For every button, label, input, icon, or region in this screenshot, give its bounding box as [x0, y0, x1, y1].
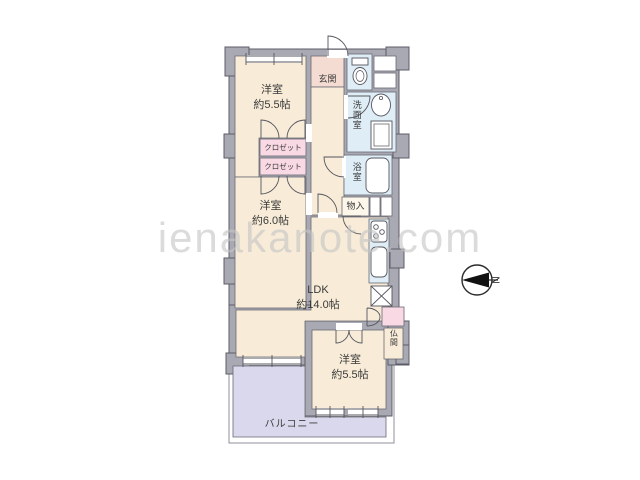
toilet-icon — [352, 58, 368, 65]
bedroom-mid-label: 洋室 約6.0帖 — [235, 199, 306, 229]
bathroom-label: 浴室 — [350, 162, 362, 182]
storage-door-panel — [381, 197, 392, 216]
bedroom-bottom-door — [336, 323, 362, 330]
storage-door-panel — [370, 197, 380, 216]
ldk-label: LDK 約14.0帖 — [281, 283, 355, 313]
butsuma-closet — [382, 307, 404, 326]
bedroom-bottom-label: 洋室 約5.5帖 — [313, 353, 387, 383]
floorplan-drawing: N — [0, 0, 640, 480]
closet2-label: クロゼット — [260, 162, 306, 172]
bathroom-door — [342, 156, 346, 178]
entrance-label: 玄関 — [311, 74, 344, 86]
kitchen-sink-icon — [371, 247, 387, 277]
compass-north-label: N — [489, 276, 500, 283]
ldk-door — [318, 212, 338, 218]
shoe-cabinet — [374, 73, 396, 88]
shoe-cabinet — [374, 56, 396, 71]
washbasin-icon — [372, 94, 391, 116]
bedroom-top-label: 洋室 約5.5帖 — [236, 83, 308, 113]
butsuma-label: 仏間 — [388, 329, 398, 347]
compass-icon: N — [462, 265, 500, 295]
balcony-label: バルコニー — [232, 418, 352, 431]
hallway-floor — [311, 87, 344, 215]
bathtub-icon — [366, 158, 389, 193]
entrance-door — [327, 50, 348, 58]
washroom-door — [344, 95, 348, 119]
washroom-label: 洗面室 — [350, 100, 362, 130]
pillar — [390, 249, 404, 268]
floorplan-page: N 洋室 約5.5帖 クロゼット クロゼット 玄関 洗面室 浴室 物入 洋室 約… — [0, 0, 640, 480]
storage-label: 物入 — [342, 201, 369, 213]
bedroom-top-door — [306, 124, 312, 142]
closet1-label: クロゼット — [260, 143, 306, 153]
bedroom-mid-door — [306, 193, 312, 215]
